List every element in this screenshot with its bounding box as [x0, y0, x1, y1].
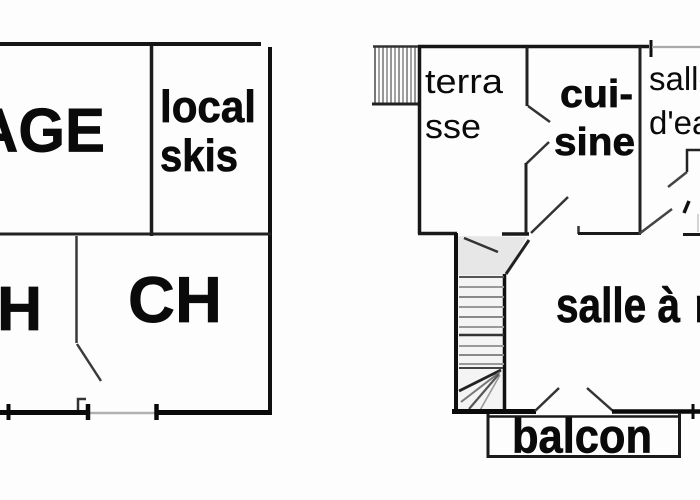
svg-text:d'eau: d'eau	[649, 104, 700, 141]
svg-text:sse: sse	[425, 108, 481, 146]
svg-text:AGE: AGE	[0, 97, 105, 166]
svg-text:ma: ma	[694, 279, 700, 333]
svg-text:salle à: salle à	[556, 279, 681, 333]
svg-text:CH: CH	[128, 263, 222, 336]
svg-text:balcon: balcon	[512, 411, 652, 464]
svg-text:H: H	[0, 274, 42, 344]
svg-text:terra: terra	[425, 63, 503, 101]
svg-text:skis: skis	[160, 130, 238, 181]
svg-text:cui-: cui-	[560, 73, 633, 116]
svg-text:salle: salle	[649, 60, 700, 97]
svg-text:sine: sine	[554, 121, 635, 164]
svg-text:local: local	[160, 81, 256, 132]
